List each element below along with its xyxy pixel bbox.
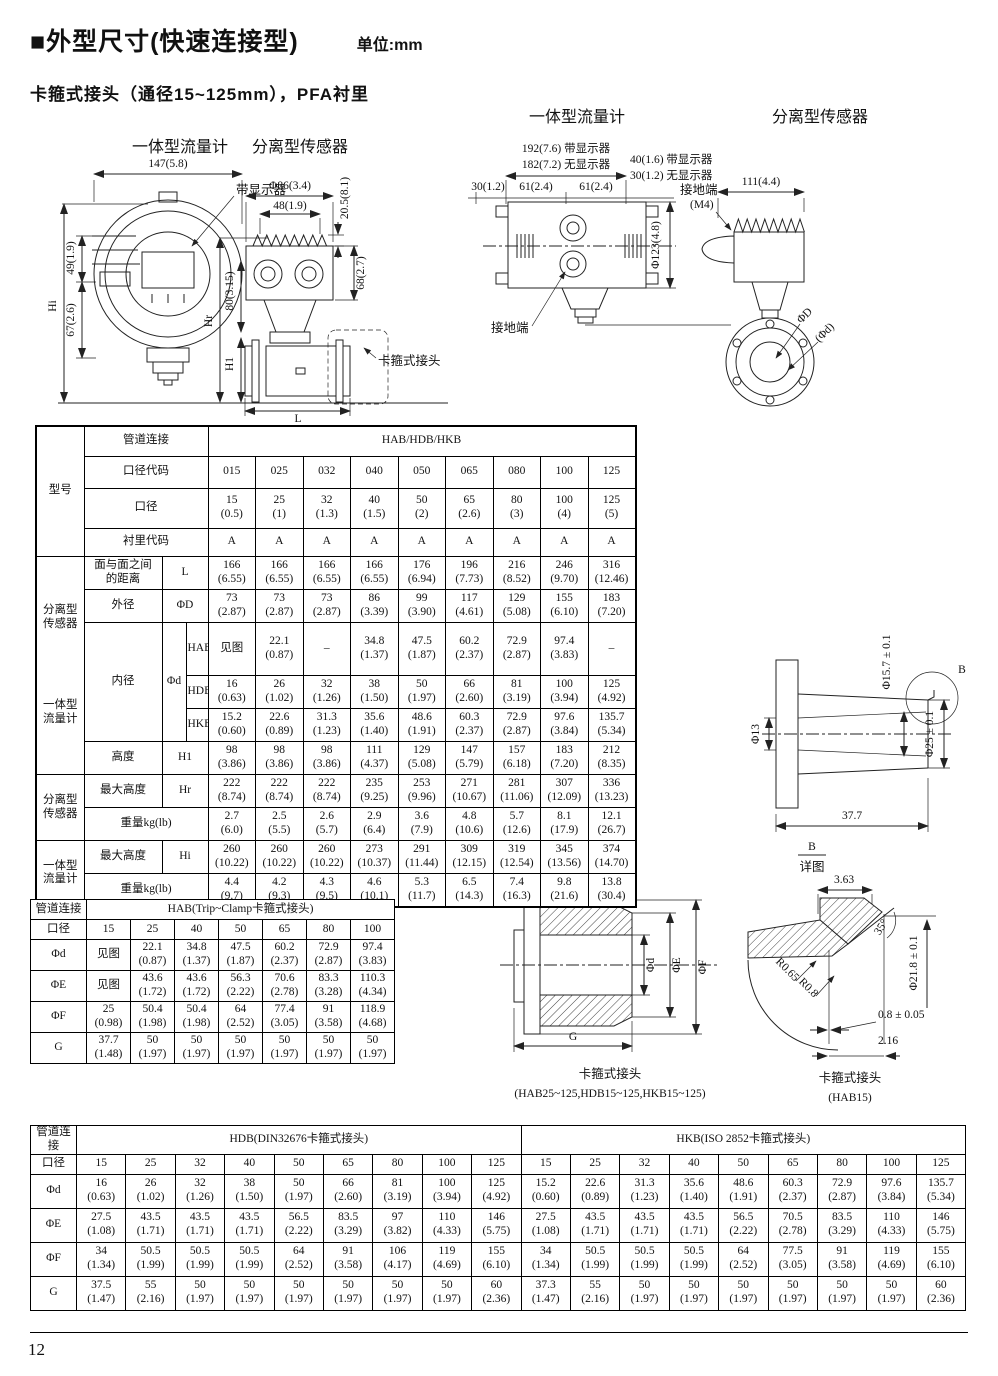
table-cell: 72.9 (2.87) xyxy=(307,940,351,971)
group-integral-label: 一体型 流量计 xyxy=(36,841,84,907)
table-cell: 40 (1.5) xyxy=(351,488,399,528)
table-cell: 100 xyxy=(541,456,589,488)
table-cell: 97.6 (3.84) xyxy=(541,709,589,742)
table-cell: 319 (12.54) xyxy=(493,841,541,874)
table-cell: 81 (3.19) xyxy=(493,676,541,709)
table-cell: 65 (2.6) xyxy=(446,488,494,528)
dim-49: 49(1.9) xyxy=(65,241,77,275)
table-cell: 13.8 (30.4) xyxy=(588,874,636,907)
table-cell: 2.6 (5.7) xyxy=(303,808,351,841)
table-cell: 50 xyxy=(274,1154,323,1174)
dim-08: 0.8 ± 0.05 xyxy=(878,1009,925,1021)
row-sublabel: HAB xyxy=(186,622,208,676)
table-cell: 50 (1.97) xyxy=(373,1276,422,1310)
clamp-ferrule-section: Φd ΦE ΦF G xyxy=(500,900,718,1052)
table-cell: 65 xyxy=(768,1154,817,1174)
clamp-joint-label: 卡箍式接头 xyxy=(378,353,441,368)
table-cell: 183 (7.20) xyxy=(541,742,589,775)
dim-phi86: Φ86(3.4) xyxy=(269,180,311,192)
table-cell: 80 xyxy=(373,1154,422,1174)
hab15-side-view: Φ13 Φ15.7 ± 0.1 Φ25 ± 0.1 37.7 B B 详图 xyxy=(750,634,966,874)
table-cell: 166 (6.55) xyxy=(303,556,351,589)
table-cell: 50 (1.97) xyxy=(422,1276,471,1310)
table-cell: 72.9 (2.87) xyxy=(493,709,541,742)
clamp-g-label: G xyxy=(569,1031,577,1043)
table-cell: 43.5 (1.71) xyxy=(669,1208,718,1242)
table-cell: 50 (1.97) xyxy=(398,676,446,709)
table-cell: 77.4 (3.05) xyxy=(263,1002,307,1033)
table-cell: 40 xyxy=(669,1154,718,1174)
model-header: 型号 xyxy=(36,426,84,556)
table-cell: 176 (6.94) xyxy=(398,556,446,589)
table-cell: 316 (12.46) xyxy=(588,556,636,589)
dim-40: 40(1.6) 带显示器 xyxy=(630,153,713,166)
table-cell: 100 xyxy=(867,1154,916,1174)
table-cell: 100 xyxy=(422,1154,471,1174)
detail-caption-2: (HAB15) xyxy=(828,1092,872,1104)
table-cell: 43.5 (1.71) xyxy=(175,1208,224,1242)
table-cell: 25 (0.98) xyxy=(87,1002,131,1033)
table-cell: 235 (9.25) xyxy=(351,775,399,808)
table-cell: 15 (0.5) xyxy=(208,488,256,528)
bore-label: 内径 xyxy=(84,622,162,742)
dim-30: 30(1.2) xyxy=(471,181,505,193)
table-cell: 50 (1.97) xyxy=(219,1033,263,1064)
table-cell: 38 (1.50) xyxy=(225,1174,274,1208)
table-cell: 125 xyxy=(916,1154,965,1174)
table-cell: 119 (4.69) xyxy=(867,1242,916,1276)
hab-clamp-table: 管道连接 HAB(Trip~Clamp卡箍式接头) 口径 15254050658… xyxy=(30,899,395,1064)
table-cell: 37.3 (1.47) xyxy=(521,1276,570,1310)
row-label: Φd xyxy=(31,1174,77,1208)
table-cell: 65 xyxy=(323,1154,372,1174)
table-cell: 15 xyxy=(77,1154,126,1174)
right-integral-title: 一体型流量计 xyxy=(529,108,625,126)
size-header: 口径 xyxy=(31,920,87,940)
table-cell: A xyxy=(588,528,636,556)
dimension-drawings-top: 147(5.8) 带显示器 Hi 49(1.9) 67(2.6) xyxy=(28,106,990,424)
footer-rule xyxy=(30,1332,968,1333)
table-cell: 5.7 (12.6) xyxy=(493,808,541,841)
table-cell: 32 (1.26) xyxy=(303,676,351,709)
table-cell: 155 (6.10) xyxy=(541,589,589,622)
dim-hi: Hi xyxy=(47,300,59,312)
group-label-cell: 分离型 传感器 一体型 流量计 xyxy=(36,556,84,775)
table-cell: 110.3 (4.34) xyxy=(351,971,395,1002)
table-cell: 32 xyxy=(175,1154,224,1174)
table-cell: 25 (1) xyxy=(256,488,304,528)
table-cell: 080 xyxy=(493,456,541,488)
table-cell: 50.5 (1.99) xyxy=(620,1242,669,1276)
table-cell: 47.5 (1.87) xyxy=(398,622,446,676)
table-cell: 50 (1.97) xyxy=(274,1276,323,1310)
table-cell: 22.1 (0.87) xyxy=(131,940,175,971)
row-label: ΦE xyxy=(31,971,87,1002)
table-cell: 70.6 (2.78) xyxy=(263,971,307,1002)
table-cell: 166 (6.55) xyxy=(208,556,256,589)
row-label: 最大高度 xyxy=(84,775,162,808)
pipe-connection-header: 管道连接 xyxy=(31,1126,77,1155)
pipe-connection-value: HAB/HDB/HKB xyxy=(208,426,636,456)
table-cell: 66 (2.60) xyxy=(446,676,494,709)
table-cell: 98 (3.86) xyxy=(303,742,351,775)
table-cell: 157 (6.18) xyxy=(493,742,541,775)
table-cell: 50 (1.97) xyxy=(175,1033,219,1064)
table-cell: A xyxy=(256,528,304,556)
dim-phi123: Φ123(4.8) xyxy=(650,221,662,269)
table-cell: 291 (11.44) xyxy=(398,841,446,874)
hdb-hkb-clamp-table: 管道连接 HDB(DIN32676卡箍式接头) HKB(ISO 2852卡箍式接… xyxy=(30,1125,966,1311)
table-cell: 56.5 (2.22) xyxy=(274,1208,323,1242)
table-cell: 见图 xyxy=(87,940,131,971)
table-cell: 166 (6.55) xyxy=(351,556,399,589)
integral-flowmeter-side-dims: 192(7.6) 带显示器 182(7.2) 无显示器 30(1.2) 61(2… xyxy=(468,142,713,335)
table-cell: 91 (3.58) xyxy=(817,1242,866,1276)
table-cell: 60.2 (2.37) xyxy=(263,940,307,971)
row-label: 面与面之间 的距离 xyxy=(84,556,162,589)
dim-35deg: 35° xyxy=(872,917,891,937)
dim-phi13: Φ13 xyxy=(750,724,762,744)
dim-377: 37.7 xyxy=(842,810,862,822)
table-cell: 60.3 (2.37) xyxy=(768,1174,817,1208)
integral-flowmeter-side-view xyxy=(483,202,731,325)
table-cell: 43.5 (1.71) xyxy=(620,1208,669,1242)
bore-symbol: Φd xyxy=(162,622,186,742)
table-cell: 3.6 (7.9) xyxy=(398,808,446,841)
table-cell: 27.5 (1.08) xyxy=(77,1208,126,1242)
table-cell: 37.7 (1.48) xyxy=(87,1033,131,1064)
table-cell: 见图 xyxy=(87,971,131,1002)
table-cell: 032 xyxy=(303,456,351,488)
table-cell: 50.4 (1.98) xyxy=(131,1002,175,1033)
table-cell: 50 (1.97) xyxy=(225,1276,274,1310)
table-cell: 25 xyxy=(570,1154,619,1174)
table-cell: 40 xyxy=(225,1154,274,1174)
table-cell: 260 (10.22) xyxy=(208,841,256,874)
dim-phi157: Φ15.7 ± 0.1 xyxy=(881,634,893,689)
right-separate-title: 分离型传感器 xyxy=(772,108,868,126)
table-cell: 32 xyxy=(620,1154,669,1174)
dim-67: 67(2.6) xyxy=(65,303,77,337)
table-cell: 31.3 (1.23) xyxy=(620,1174,669,1208)
table-cell: 50 (1.97) xyxy=(867,1276,916,1310)
dim-61b: 61(2.4) xyxy=(579,181,613,193)
liner-code-header: 衬里代码 xyxy=(84,528,208,556)
table-cell: 271 (10.67) xyxy=(446,775,494,808)
table-cell: 50 (1.97) xyxy=(768,1276,817,1310)
dim-30b: 30(1.2) 无显示器 xyxy=(630,169,713,182)
table-cell: 2.7 (6.0) xyxy=(208,808,256,841)
table-cell: 16 (0.63) xyxy=(77,1174,126,1208)
table-cell: 77.5 (3.05) xyxy=(768,1242,817,1276)
table-cell: 050 xyxy=(398,456,446,488)
table-cell: 34.8 (1.37) xyxy=(351,622,399,676)
table-cell: 81 (3.19) xyxy=(373,1174,422,1208)
table-cell: 64 (2.52) xyxy=(274,1242,323,1276)
table-cell: 4.8 (10.6) xyxy=(446,808,494,841)
dim-phi25: Φ25 ± 0.1 xyxy=(924,711,936,758)
table-cell: 50 xyxy=(719,1154,768,1174)
row-symbol: H1 xyxy=(162,742,208,775)
hdb-table-title: HDB(DIN32676卡箍式接头) xyxy=(77,1126,522,1155)
table-cell: 50 (1.97) xyxy=(323,1276,372,1310)
table-cell: 100 (4) xyxy=(541,488,589,528)
table-cell: 216 (8.52) xyxy=(493,556,541,589)
table-cell: 135.7 (5.34) xyxy=(916,1174,965,1208)
separate-sensor-side-dims: 111(4.4) 接地端 (M4) ΦD (Φd) xyxy=(680,176,837,370)
dim-48: 48(1.9) xyxy=(273,200,307,212)
dim-182: 182(7.2) 无显示器 xyxy=(522,158,611,171)
table-cell: 83.3 (3.28) xyxy=(307,971,351,1002)
table-cell: 222 (8.74) xyxy=(256,775,304,808)
table-cell: 222 (8.74) xyxy=(303,775,351,808)
table-cell: A xyxy=(493,528,541,556)
row-symbol: L xyxy=(162,556,208,589)
row-label: 重量kg(lb) xyxy=(84,808,208,841)
table-cell: 64 (2.52) xyxy=(719,1242,768,1276)
table-cell: 2.9 (6.4) xyxy=(351,808,399,841)
table-cell: 5.3 (11.7) xyxy=(398,874,446,907)
table-cell: 98 (3.86) xyxy=(208,742,256,775)
table-cell: 86 (3.39) xyxy=(351,589,399,622)
table-cell: 34.8 (1.37) xyxy=(175,940,219,971)
table-cell: 70.5 (2.78) xyxy=(768,1208,817,1242)
table-cell: 99 (3.90) xyxy=(398,589,446,622)
table-cell: 55 (2.16) xyxy=(126,1276,175,1310)
table-cell: 97.4 (3.83) xyxy=(351,940,395,971)
table-cell: 50 (1.97) xyxy=(620,1276,669,1310)
table-cell: 31.3 (1.23) xyxy=(303,709,351,742)
table-cell: 见图 xyxy=(208,622,256,676)
row-sublabel: HKB xyxy=(186,709,208,742)
table-cell: 32 (1.3) xyxy=(303,488,351,528)
table-cell: 73 (2.87) xyxy=(303,589,351,622)
table-cell: A xyxy=(398,528,446,556)
size-code-header: 口径代码 xyxy=(84,456,208,488)
table-cell: 50 (1.97) xyxy=(263,1033,307,1064)
table-cell: A xyxy=(446,528,494,556)
table-cell: 129 (5.08) xyxy=(398,742,446,775)
table-cell: 15 xyxy=(87,920,131,940)
table-cell: 50 (1.97) xyxy=(351,1033,395,1064)
group-separate-label: 分离型 传感器 xyxy=(36,775,84,841)
table-cell: 25 xyxy=(126,1154,175,1174)
table-cell: A xyxy=(208,528,256,556)
table-cell: 281 (11.06) xyxy=(493,775,541,808)
detail-b-letter: B xyxy=(808,841,816,853)
clamp-phiE-label: ΦE xyxy=(671,957,683,972)
row-label: 最大高度 xyxy=(84,841,162,874)
table-cell: 55 (2.16) xyxy=(570,1276,619,1310)
detail-word: 详图 xyxy=(799,859,824,874)
dim-111: 111(4.4) xyxy=(742,176,781,188)
table-cell: 260 (10.22) xyxy=(256,841,304,874)
table-cell: 125 (4.92) xyxy=(472,1174,521,1208)
table-cell: 12.1 (26.7) xyxy=(588,808,636,841)
row-label: G xyxy=(31,1033,87,1064)
table-cell: 91 (3.58) xyxy=(307,1002,351,1033)
table-cell: 50 (1.97) xyxy=(131,1033,175,1064)
table-cell: 16 (0.63) xyxy=(208,676,256,709)
page-title: ■外型尺寸(快速连接型) xyxy=(30,22,299,58)
phid-label: (Φd) xyxy=(813,321,837,345)
table-cell: 100 (3.94) xyxy=(422,1174,471,1208)
table-cell: 119 (4.69) xyxy=(422,1242,471,1276)
table-cell: 43.5 (1.71) xyxy=(570,1208,619,1242)
table-cell: 129 (5.08) xyxy=(493,589,541,622)
row-symbol: Hr xyxy=(162,775,208,808)
left-integral-title: 一体型流量计 xyxy=(132,138,228,156)
dim-phi218: Φ21.8 ± 0.1 xyxy=(908,935,920,990)
table-cell: 50.5 (1.99) xyxy=(126,1242,175,1276)
table-cell: 32 (1.26) xyxy=(175,1174,224,1208)
table-cell: 22.1 (0.87) xyxy=(256,622,304,676)
table-cell: 43.5 (1.71) xyxy=(126,1208,175,1242)
table-cell: 64 (2.52) xyxy=(219,1002,263,1033)
table-cell: 125 xyxy=(588,456,636,488)
table-cell: 60.2 (2.37) xyxy=(446,622,494,676)
table-cell: 40 xyxy=(175,920,219,940)
table-cell: 345 (13.56) xyxy=(541,841,589,874)
dim-216: 2.16 xyxy=(878,1035,898,1047)
table-cell: 146 (5.75) xyxy=(916,1208,965,1242)
group-separate-label: 分离型 传感器 xyxy=(38,604,83,632)
table-cell: 66 (2.60) xyxy=(323,1174,372,1208)
table-cell: 50 (1.97) xyxy=(307,1033,351,1064)
detail-b-drawing: 3.63 35° Φ21.8 ± 0.1 R0.65 R0.8 0.8 ± 0.… xyxy=(748,874,936,1056)
table-cell: 110 (4.33) xyxy=(867,1208,916,1242)
table-cell: 125 xyxy=(472,1154,521,1174)
dim-205: 20.5(8.1) xyxy=(339,177,351,219)
table-cell: 48.6 (1.91) xyxy=(398,709,446,742)
clamp-phiF-label: ΦF xyxy=(697,960,709,975)
table-cell: 22.6 (0.89) xyxy=(256,709,304,742)
table-cell: 246 (9.70) xyxy=(541,556,589,589)
table-cell: 34 (1.34) xyxy=(521,1242,570,1276)
table-cell: 9.8 (21.6) xyxy=(541,874,589,907)
table-cell: 65 xyxy=(263,920,307,940)
table-cell: 309 (12.15) xyxy=(446,841,494,874)
table-cell: 73 (2.87) xyxy=(208,589,256,622)
table-cell: 015 xyxy=(208,456,256,488)
table-cell: 147 (5.79) xyxy=(446,742,494,775)
table-cell: 374 (14.70) xyxy=(588,841,636,874)
dim-61a: 61(2.4) xyxy=(519,181,553,193)
page-number: 12 xyxy=(28,1340,45,1360)
table-cell: 50.5 (1.99) xyxy=(225,1242,274,1276)
phiD-label: ΦD xyxy=(795,306,815,326)
row-label: 高度 xyxy=(84,742,162,775)
table-cell: 307 (12.09) xyxy=(541,775,589,808)
dim-r08: R0.8 xyxy=(796,976,820,1000)
table-cell: 47.5 (1.87) xyxy=(219,940,263,971)
table-cell: 60 (2.36) xyxy=(472,1276,521,1310)
detail-caption-1: 卡箍式接头 xyxy=(819,1070,882,1085)
hab-table-title: HAB(Trip~Clamp卡箍式接头) xyxy=(87,900,395,920)
table-cell: 43.5 (1.71) xyxy=(225,1208,274,1242)
table-cell: – xyxy=(303,622,351,676)
pipe-connection-header: 管道连接 xyxy=(84,426,208,456)
row-label: 外径 xyxy=(84,589,162,622)
row-sublabel: HDB xyxy=(186,676,208,709)
table-cell: 100 (3.94) xyxy=(541,676,589,709)
table-cell: 43.6 (1.72) xyxy=(131,971,175,1002)
row-label: Φd xyxy=(31,940,87,971)
size-header: 口径 xyxy=(84,488,208,528)
table-cell: 135.7 (5.34) xyxy=(588,709,636,742)
table-cell: 80 (3) xyxy=(493,488,541,528)
table-cell: 15.2 (0.60) xyxy=(208,709,256,742)
table-cell: 025 xyxy=(256,456,304,488)
table-cell: 80 xyxy=(307,920,351,940)
table-cell: 37.5 (1.47) xyxy=(77,1276,126,1310)
table-cell: 6.5 (14.3) xyxy=(446,874,494,907)
main-dimensions-table: 型号 管道连接 HAB/HDB/HKB 口径代码 015025032040050… xyxy=(35,425,637,908)
pipe-connection-header: 管道连接 xyxy=(31,900,87,920)
table-cell: A xyxy=(351,528,399,556)
dim-hr: Hr xyxy=(203,315,215,327)
table-cell: – xyxy=(588,622,636,676)
table-cell: 336 (13.23) xyxy=(588,775,636,808)
table-cell: 97.6 (3.84) xyxy=(867,1174,916,1208)
table-cell: 125 (4.92) xyxy=(588,676,636,709)
table-cell: 196 (7.73) xyxy=(446,556,494,589)
ground-m4-label: 接地端 xyxy=(680,182,718,197)
table-cell: 56.3 (2.22) xyxy=(219,971,263,1002)
table-cell: 183 (7.20) xyxy=(588,589,636,622)
table-cell: 50 (2) xyxy=(398,488,446,528)
table-cell: 50 (1.97) xyxy=(175,1276,224,1310)
table-cell: 100 xyxy=(351,920,395,940)
integral-flowmeter-front-view xyxy=(58,192,448,403)
table-cell: 15 xyxy=(521,1154,570,1174)
table-cell: 110 (4.33) xyxy=(422,1208,471,1242)
table-cell: A xyxy=(541,528,589,556)
table-cell: 117 (4.61) xyxy=(446,589,494,622)
row-label: ΦF xyxy=(31,1002,87,1033)
table-cell: 222 (8.74) xyxy=(208,775,256,808)
table-cell: 106 (4.17) xyxy=(373,1242,422,1276)
table-cell: 111 (4.37) xyxy=(351,742,399,775)
table-cell: 25 xyxy=(131,920,175,940)
table-cell: 80 xyxy=(817,1154,866,1174)
size-header: 口径 xyxy=(31,1154,77,1174)
table-cell: 50 (1.97) xyxy=(719,1276,768,1310)
row-label: ΦE xyxy=(31,1208,77,1242)
table-cell: 43.6 (1.72) xyxy=(175,971,219,1002)
dim-h1: H1 xyxy=(224,357,236,371)
table-cell: 27.5 (1.08) xyxy=(521,1208,570,1242)
table-cell: 166 (6.55) xyxy=(256,556,304,589)
table-cell: 15.2 (0.60) xyxy=(521,1174,570,1208)
dim-80: 80(3.15) xyxy=(224,271,236,310)
table-cell: 50.5 (1.99) xyxy=(570,1242,619,1276)
table-cell: 155 (6.10) xyxy=(916,1242,965,1276)
table-cell: 56.5 (2.22) xyxy=(719,1208,768,1242)
table-cell: 273 (10.37) xyxy=(351,841,399,874)
dim-68: 68(2.7) xyxy=(355,256,367,290)
table-cell: 7.4 (16.3) xyxy=(493,874,541,907)
page-header: ■外型尺寸(快速连接型) 单位:mm xyxy=(30,22,423,58)
table-cell: 83.5 (3.29) xyxy=(323,1208,372,1242)
table-cell: 155 (6.10) xyxy=(472,1242,521,1276)
table-cell: 2.5 (5.5) xyxy=(256,808,304,841)
table-cell: A xyxy=(303,528,351,556)
table-cell: 38 (1.50) xyxy=(351,676,399,709)
integral-flowmeter-front-dims: 147(5.8) 带显示器 Hi 49(1.9) 67(2.6) xyxy=(47,158,287,402)
table-cell: 50.5 (1.99) xyxy=(175,1242,224,1276)
row-symbol: ΦD xyxy=(162,589,208,622)
